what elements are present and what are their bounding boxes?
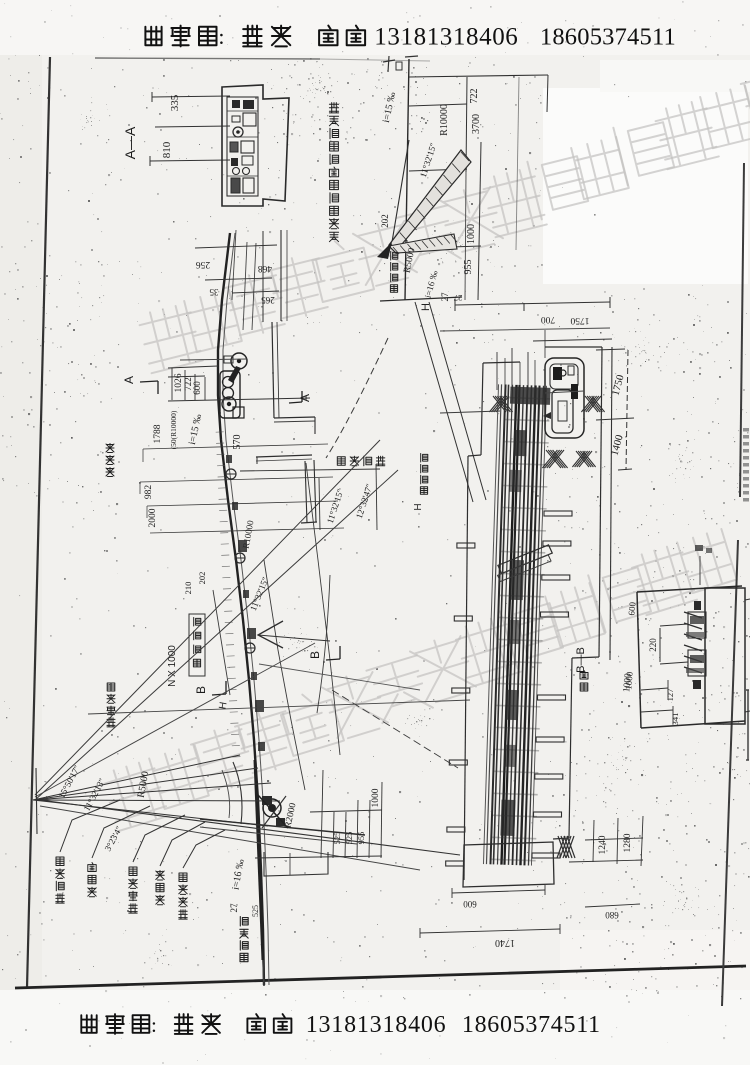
svg-text:700: 700 [541, 314, 556, 324]
svg-text:127: 127 [665, 689, 675, 702]
svg-text:B: B [308, 651, 322, 659]
svg-text:256: 256 [196, 259, 211, 269]
svg-text:B—B: B—B [575, 647, 587, 673]
svg-text:1280: 1280 [623, 833, 633, 852]
svg-text:570: 570 [232, 435, 243, 450]
svg-text:1740: 1740 [495, 937, 515, 948]
svg-text:335: 335 [169, 94, 181, 111]
svg-text:810: 810 [161, 141, 173, 158]
svg-text:B: B [194, 686, 208, 694]
svg-text:13181318406: 13181318406 [374, 24, 518, 51]
svg-text:18605374511: 18605374511 [462, 1012, 601, 1038]
svg-text:982: 982 [144, 485, 154, 500]
svg-text:27: 27 [454, 293, 463, 303]
svg-text:341: 341 [670, 713, 680, 726]
svg-text:1000: 1000 [466, 224, 477, 244]
svg-text:N X 1000: N X 1000 [167, 645, 178, 687]
svg-text:3700: 3700 [471, 114, 482, 134]
svg-text:A—A: A—A [122, 126, 138, 159]
svg-text:1000: 1000 [623, 671, 635, 690]
svg-text:A: A [298, 394, 312, 402]
svg-text:(50(R10000): (50(R10000) [169, 410, 178, 449]
svg-text:1000: 1000 [371, 788, 381, 807]
svg-text:202: 202 [380, 214, 390, 228]
svg-text:35: 35 [209, 287, 219, 297]
svg-text:202: 202 [197, 572, 207, 585]
svg-text:955: 955 [463, 260, 474, 275]
svg-text:722: 722 [469, 89, 480, 104]
svg-text:525: 525 [251, 905, 260, 917]
svg-text:2000: 2000 [148, 508, 158, 527]
svg-text:18605374511: 18605374511 [540, 24, 676, 51]
svg-text:1788: 1788 [153, 424, 163, 443]
svg-text:220: 220 [648, 638, 658, 652]
svg-text:27: 27 [440, 292, 450, 302]
svg-text:13181318406: 13181318406 [306, 1012, 447, 1038]
svg-text:A: A [122, 376, 136, 384]
svg-text::: : [218, 24, 224, 49]
svg-text::: : [151, 1013, 157, 1037]
svg-text:468: 468 [258, 263, 273, 273]
svg-text:600: 600 [626, 601, 637, 616]
svg-text:27: 27 [229, 903, 239, 913]
svg-text:H: H [413, 503, 424, 510]
svg-text:525: 525 [332, 832, 342, 845]
svg-text:1750: 1750 [570, 315, 589, 325]
svg-text:600: 600 [463, 899, 477, 909]
svg-text:525: 525 [344, 832, 354, 845]
svg-text:R10000: R10000 [439, 104, 450, 136]
svg-text:680: 680 [605, 910, 619, 920]
svg-text:955: 955 [356, 832, 366, 845]
svg-text:210: 210 [183, 582, 193, 595]
svg-text:600: 600 [192, 381, 202, 395]
svg-text:1240: 1240 [598, 835, 608, 854]
